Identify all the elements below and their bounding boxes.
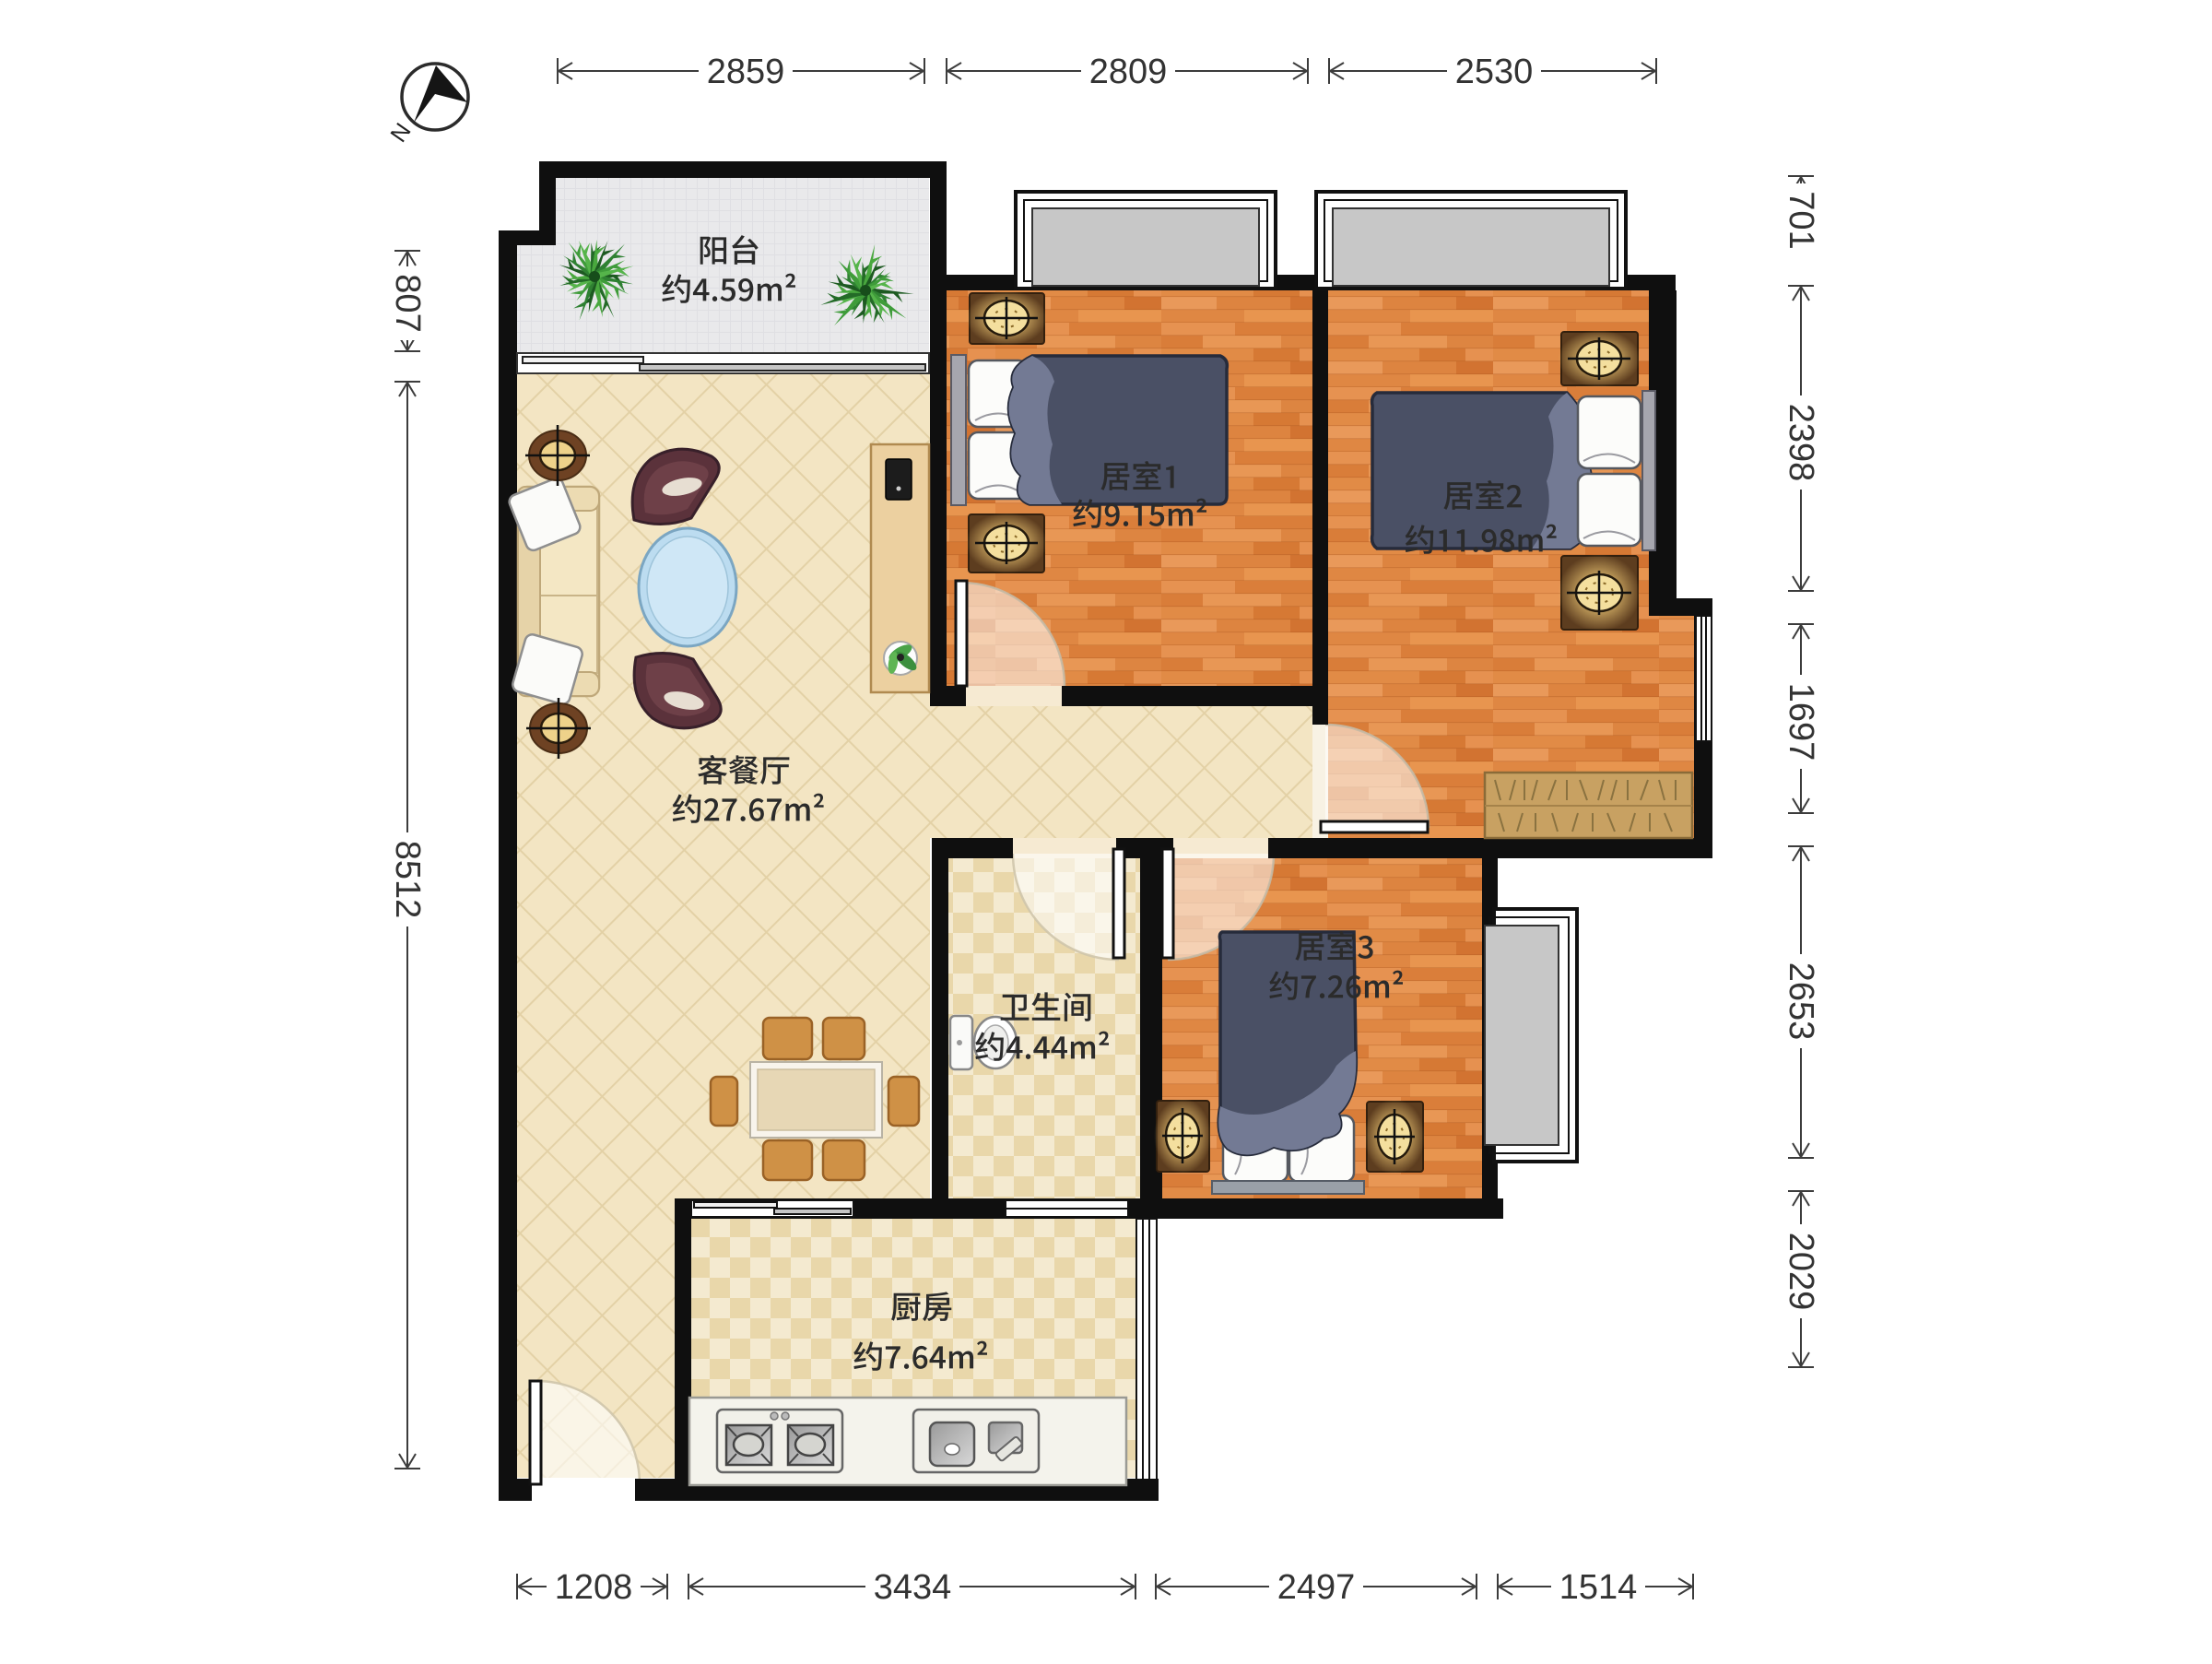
svg-text:1208: 1208 xyxy=(555,1568,633,1607)
svg-text:2398: 2398 xyxy=(1782,404,1820,482)
svg-text:2859: 2859 xyxy=(707,53,785,91)
svg-text:3434: 3434 xyxy=(874,1568,952,1607)
svg-text:1514: 1514 xyxy=(1559,1568,1638,1607)
svg-text:701: 701 xyxy=(1782,191,1820,249)
svg-text:807: 807 xyxy=(388,274,427,332)
svg-text:8512: 8512 xyxy=(388,841,427,919)
svg-text:1697: 1697 xyxy=(1782,683,1820,761)
svg-text:2029: 2029 xyxy=(1782,1233,1820,1311)
svg-text:2497: 2497 xyxy=(1277,1568,1356,1607)
svg-text:2530: 2530 xyxy=(1455,53,1534,91)
svg-text:2653: 2653 xyxy=(1782,962,1820,1041)
svg-text:2809: 2809 xyxy=(1089,53,1168,91)
